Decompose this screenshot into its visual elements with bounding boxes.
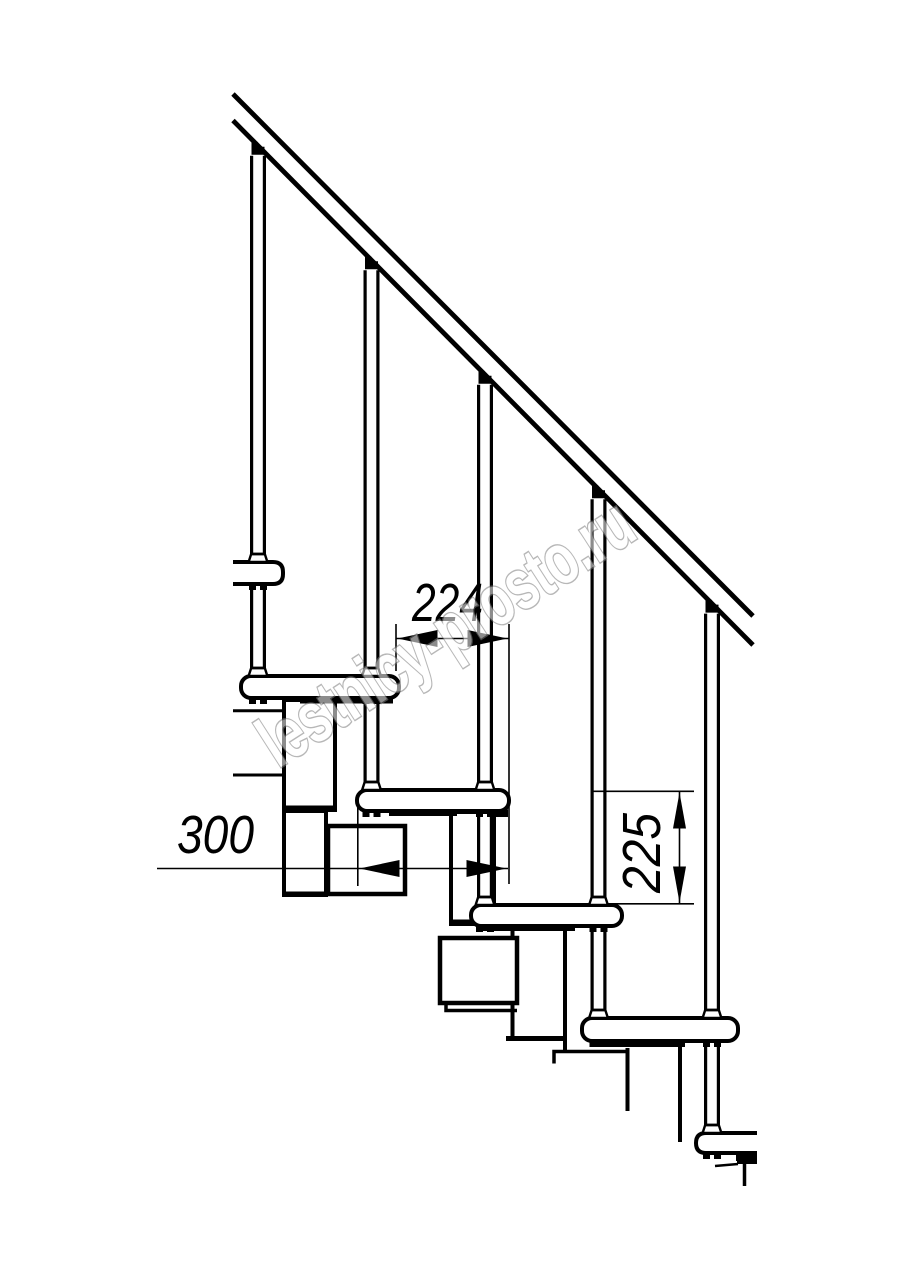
svg-text:225: 225 xyxy=(612,812,672,894)
svg-text:300: 300 xyxy=(177,805,254,865)
